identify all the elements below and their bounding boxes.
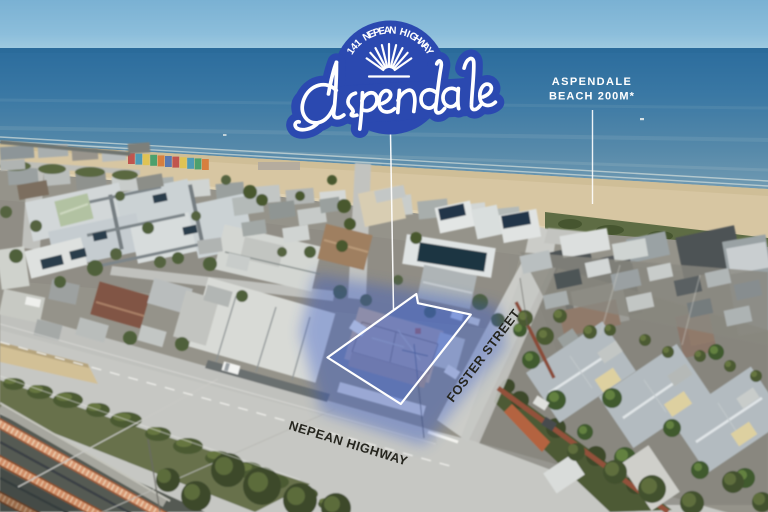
svg-text:ASPENDALE: ASPENDALE (552, 76, 632, 88)
svg-text:N: N (389, 25, 397, 36)
svg-text:BEACH 200M*: BEACH 200M* (549, 91, 635, 103)
